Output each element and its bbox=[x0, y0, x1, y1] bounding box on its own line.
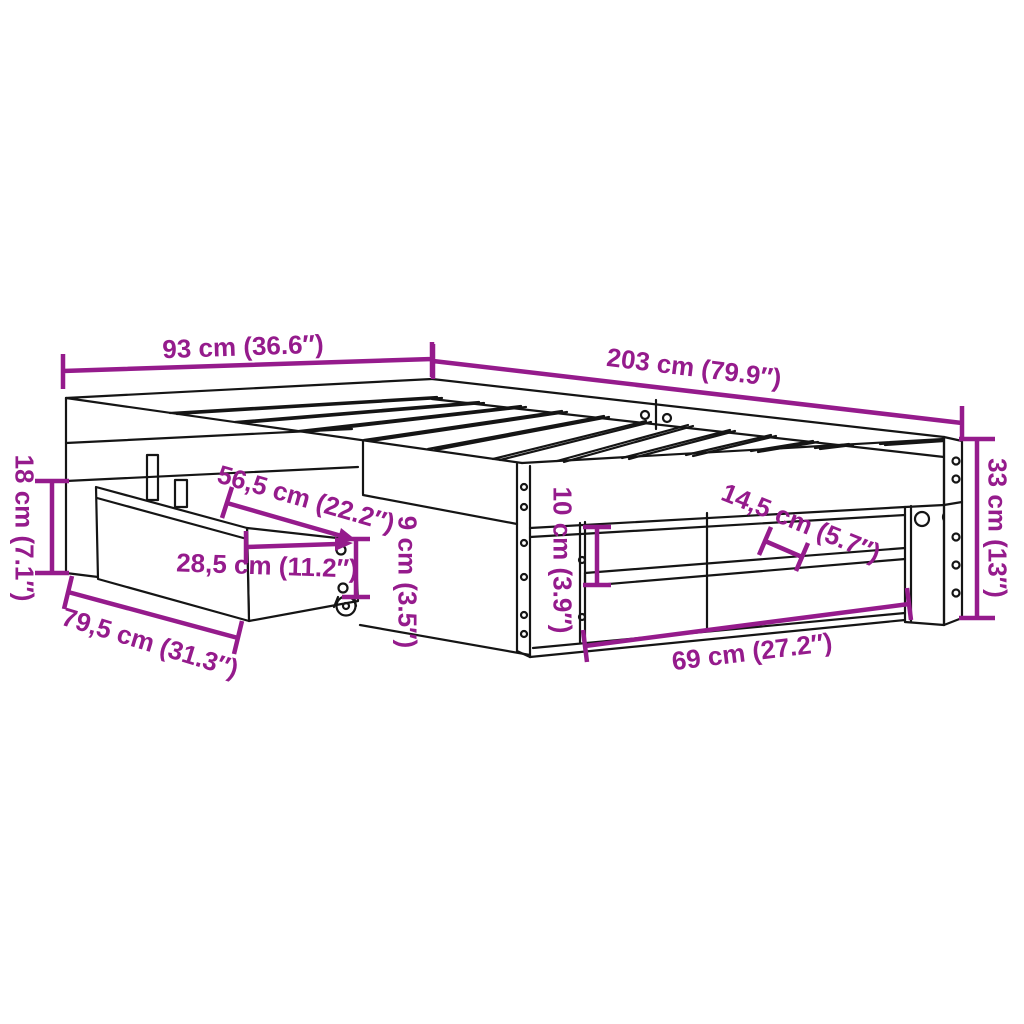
rail-hole bbox=[641, 411, 649, 419]
foot-end bbox=[905, 437, 962, 625]
center-support-post bbox=[517, 464, 530, 657]
screw-hole bbox=[521, 612, 527, 618]
dimension-label-10cm: 10 cm (3.9″) bbox=[547, 487, 578, 634]
diagram-canvas: 93 cm (36.6″) 203 cm (79.9″) 33 cm (13″)… bbox=[0, 0, 1024, 1024]
dimension-label-9cm: 9 cm (3.5″) bbox=[392, 516, 423, 648]
screw-hole bbox=[579, 557, 585, 563]
screw-hole bbox=[579, 614, 585, 620]
dim-line-18cm bbox=[35, 481, 69, 573]
dimension-label-33cm: 33 cm (13″) bbox=[982, 458, 1013, 598]
screw-hole bbox=[521, 574, 527, 580]
rail-hole bbox=[663, 414, 671, 422]
dimension-label-93cm: 93 cm (36.6″) bbox=[162, 329, 324, 366]
panel-hole bbox=[915, 512, 929, 526]
dimension-lines bbox=[35, 342, 995, 662]
screw-hole bbox=[521, 484, 527, 490]
screw-hole bbox=[521, 631, 527, 637]
screw-hole bbox=[521, 504, 527, 510]
screw-hole bbox=[521, 540, 527, 546]
dim-line-10cm bbox=[583, 527, 611, 585]
dimension-label-18cm: 18 cm (7.1″) bbox=[9, 455, 40, 602]
bed-frame-diagram-svg bbox=[0, 0, 1024, 1024]
dimension-label-28-5cm: 28,5 cm (11.2″) bbox=[176, 547, 359, 584]
bracket-slot bbox=[175, 480, 187, 507]
